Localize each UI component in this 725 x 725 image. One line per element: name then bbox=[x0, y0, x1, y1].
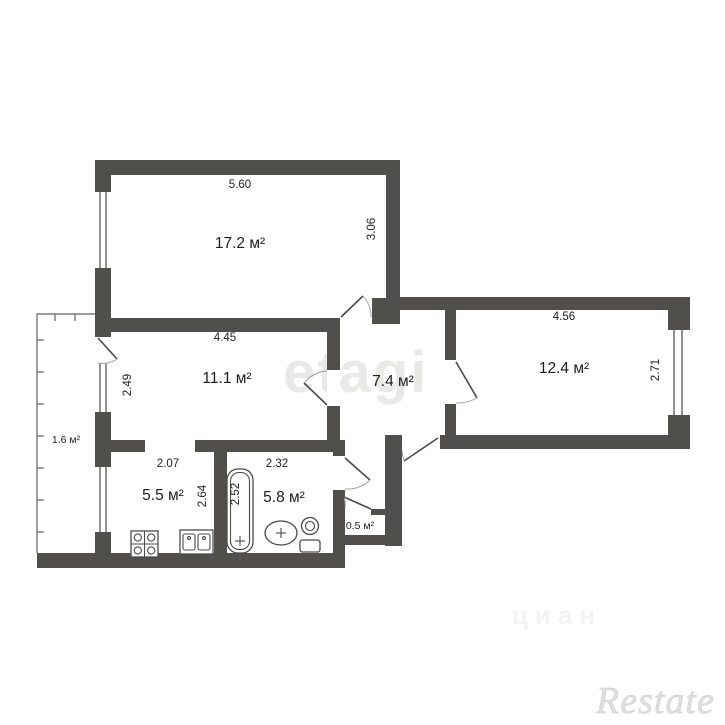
room-label-kitchen: 5.5 м² bbox=[142, 487, 184, 504]
wall bbox=[335, 535, 402, 545]
wall bbox=[111, 318, 340, 332]
door-swing bbox=[341, 296, 371, 317]
dim-kitchen-width: 2.07 bbox=[157, 458, 179, 470]
floor-plan-canvas: etagi циан bbox=[0, 0, 725, 725]
wall bbox=[386, 160, 400, 322]
wall bbox=[445, 435, 690, 449]
dim-bathroom-width: 2.32 bbox=[266, 458, 288, 470]
kitchen-sink-icon bbox=[180, 530, 213, 554]
wall bbox=[214, 452, 227, 553]
dim-bathroom-depth: 2.52 bbox=[230, 483, 242, 505]
door-swing bbox=[345, 458, 370, 489]
washbasin-icon bbox=[265, 521, 297, 545]
door-swing bbox=[344, 497, 371, 509]
dim-room11-width: 4.45 bbox=[214, 332, 236, 344]
room-label-17-2: 17.2 м² bbox=[215, 235, 265, 252]
dim-kitchen-depth: 2.64 bbox=[197, 484, 209, 507]
wall bbox=[400, 297, 690, 310]
room-label-balcony: 1.6 м² bbox=[52, 434, 81, 446]
door-swing bbox=[456, 362, 477, 403]
wall bbox=[372, 298, 400, 324]
room-label-closet: 0.5 м² bbox=[346, 520, 375, 532]
dim-room17-depth: 3.06 bbox=[366, 218, 378, 240]
room-label-11-1: 11.1 м² bbox=[202, 370, 251, 387]
room-label-7-4: 7.4 м² bbox=[372, 373, 414, 390]
wall bbox=[95, 160, 400, 175]
dim-room12-width: 4.56 bbox=[553, 311, 575, 323]
stove-icon bbox=[131, 531, 158, 557]
toilet-icon bbox=[300, 518, 320, 553]
floor-plan-drawing: etagi циан bbox=[0, 0, 725, 725]
wall bbox=[37, 553, 345, 568]
dim-room11-depth: 2.49 bbox=[122, 374, 134, 396]
restate-logo: Restate bbox=[595, 680, 715, 722]
dim-room12-depth: 2.71 bbox=[650, 359, 662, 381]
bathtub-icon bbox=[227, 469, 253, 553]
dim-room17-width: 5.60 bbox=[229, 179, 251, 191]
faint-watermark: циан bbox=[512, 600, 602, 630]
wall bbox=[385, 449, 402, 546]
room-label-bathroom: 5.8 м² bbox=[263, 489, 305, 506]
room-label-12-4: 12.4 м² bbox=[539, 360, 589, 377]
